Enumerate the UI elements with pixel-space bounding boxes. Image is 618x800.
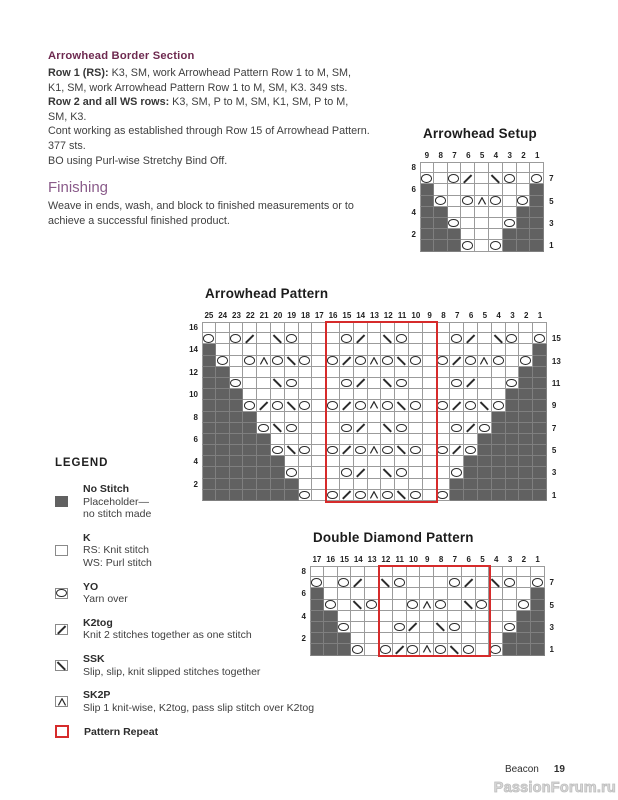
legend-text: YOYarn over bbox=[83, 581, 128, 606]
chart-cell bbox=[517, 218, 531, 229]
chart-cell bbox=[531, 566, 545, 577]
chart-cell bbox=[489, 218, 503, 229]
chart-cell bbox=[434, 229, 448, 240]
row-number-right: 1 bbox=[545, 644, 561, 655]
chart-cell bbox=[437, 479, 451, 490]
chart-cell bbox=[423, 456, 437, 467]
chart-cell bbox=[450, 445, 464, 456]
chart-cell bbox=[475, 173, 489, 184]
chart-cell bbox=[448, 622, 462, 633]
column-number: 24 bbox=[216, 309, 230, 322]
k2tog-icon bbox=[395, 645, 404, 654]
chart-cell bbox=[271, 378, 285, 389]
chart-cell bbox=[420, 600, 434, 611]
legend-item: KRS: Knit stitchWS: Purl stitch bbox=[55, 532, 385, 570]
chart-cell bbox=[475, 162, 489, 173]
footer-brand: Beacon bbox=[505, 764, 539, 775]
row-number-right: 3 bbox=[545, 622, 561, 633]
instruction-paragraph: Cont working as established through Row … bbox=[48, 124, 370, 153]
chart-cell bbox=[492, 389, 506, 400]
chart-cell bbox=[448, 633, 462, 644]
chart-cell bbox=[368, 333, 382, 344]
legend-item-description: RS: Knit stitch bbox=[83, 544, 152, 557]
chart-cell bbox=[450, 412, 464, 423]
chart-cell bbox=[420, 588, 434, 599]
column-number: 10 bbox=[407, 553, 421, 566]
chart-cell bbox=[450, 467, 464, 478]
chart-cell bbox=[230, 434, 244, 445]
row-number-right: 15 bbox=[547, 333, 563, 344]
chart-cell bbox=[448, 644, 462, 655]
row-number-right: 5 bbox=[544, 196, 560, 207]
chart-cell bbox=[489, 577, 503, 588]
chart-cell bbox=[503, 229, 517, 240]
row-number-right: 5 bbox=[547, 445, 563, 456]
chart-cell bbox=[381, 378, 395, 389]
column-number: 15 bbox=[340, 309, 354, 322]
column-number: 21 bbox=[257, 309, 271, 322]
chart-cell bbox=[517, 207, 531, 218]
chart-cell bbox=[381, 333, 395, 344]
chart-cell bbox=[409, 322, 423, 333]
chart-cell bbox=[230, 356, 244, 367]
chart-cell bbox=[312, 344, 326, 355]
instruction-paragraphs: Row 1 (RS): K3, SM, work Arrowhead Patte… bbox=[48, 66, 370, 168]
yarn-over-icon bbox=[327, 401, 338, 410]
chart-cell bbox=[461, 196, 475, 207]
chart-cell bbox=[437, 423, 451, 434]
chart-cell bbox=[230, 378, 244, 389]
chart-cell bbox=[409, 490, 423, 501]
yarn-over-icon bbox=[493, 356, 504, 365]
chart-cell bbox=[462, 633, 476, 644]
chart-cell bbox=[437, 467, 451, 478]
chart-cell bbox=[464, 378, 478, 389]
yarn-over-icon bbox=[504, 623, 515, 632]
chart-cell bbox=[450, 479, 464, 490]
chart-cell bbox=[243, 333, 257, 344]
column-number: 11 bbox=[393, 553, 407, 566]
column-number: 25 bbox=[202, 309, 216, 322]
chart-cell bbox=[326, 434, 340, 445]
chart-cell bbox=[299, 434, 313, 445]
row-number-left bbox=[404, 173, 420, 184]
chart-cell bbox=[340, 344, 354, 355]
row-number-left: 16 bbox=[186, 322, 202, 333]
ssk-icon bbox=[273, 334, 282, 343]
column-number: 6 bbox=[461, 149, 475, 162]
chart-cell bbox=[492, 333, 506, 344]
chart-cell bbox=[448, 196, 462, 207]
row-number-right: 3 bbox=[547, 467, 563, 478]
chart-cell bbox=[519, 378, 533, 389]
chart-cell bbox=[368, 367, 382, 378]
chart-cell bbox=[476, 611, 490, 622]
chart-cell bbox=[354, 400, 368, 411]
chart-cell bbox=[395, 378, 409, 389]
chart-cell bbox=[423, 434, 437, 445]
yarn-over-icon bbox=[490, 241, 501, 250]
ssk-icon bbox=[397, 356, 406, 365]
chart-cell bbox=[519, 356, 533, 367]
row-number-right bbox=[545, 611, 561, 622]
chart-cell bbox=[489, 240, 503, 251]
k2tog-icon bbox=[463, 174, 472, 183]
chart-cell bbox=[381, 423, 395, 434]
chart-cell bbox=[489, 566, 503, 577]
chart-cell bbox=[230, 367, 244, 378]
yarn-over-icon bbox=[435, 196, 446, 205]
legend-item-description: Knit 2 stitches together as one stitch bbox=[83, 629, 252, 642]
yarn-over-icon bbox=[532, 578, 543, 587]
chart-cell bbox=[202, 367, 216, 378]
chart-cell bbox=[448, 600, 462, 611]
chart-cell bbox=[381, 389, 395, 400]
ssk-icon bbox=[273, 379, 282, 388]
chart-cell bbox=[271, 412, 285, 423]
sk2p-icon bbox=[57, 698, 67, 706]
k2tog-icon bbox=[466, 423, 475, 432]
chart-cell bbox=[464, 456, 478, 467]
chart-cell bbox=[462, 611, 476, 622]
yarn-over-icon bbox=[506, 334, 517, 343]
chart-cell bbox=[519, 344, 533, 355]
chart-cell bbox=[368, 445, 382, 456]
chart-cell bbox=[434, 184, 448, 195]
chart-cell bbox=[519, 400, 533, 411]
ssk-icon bbox=[480, 401, 489, 410]
chart-cell bbox=[340, 445, 354, 456]
chart-cell bbox=[478, 423, 492, 434]
yarn-over-icon bbox=[382, 356, 393, 365]
legend-text: K2togKnit 2 stitches together as one sti… bbox=[83, 617, 252, 642]
chart-cell bbox=[506, 389, 520, 400]
column-number: 6 bbox=[462, 553, 476, 566]
column-number: 1 bbox=[533, 309, 547, 322]
chart-cell bbox=[492, 344, 506, 355]
chart-cell bbox=[517, 577, 531, 588]
chart-cell bbox=[533, 423, 547, 434]
chart-cell bbox=[506, 434, 520, 445]
chart-cell bbox=[450, 322, 464, 333]
chart-cell bbox=[312, 333, 326, 344]
k2tog-icon bbox=[342, 446, 351, 455]
chart-cell bbox=[423, 467, 437, 478]
chart-cell bbox=[492, 356, 506, 367]
yarn-over-icon bbox=[244, 356, 255, 365]
chart-cell bbox=[368, 400, 382, 411]
chart-cell bbox=[503, 218, 517, 229]
chart-cell bbox=[519, 456, 533, 467]
chart-cell bbox=[368, 434, 382, 445]
chart-cell bbox=[464, 333, 478, 344]
chart-cell bbox=[506, 367, 520, 378]
column-number: 5 bbox=[478, 309, 492, 322]
yarn-over-icon bbox=[451, 379, 462, 388]
k2tog-icon bbox=[466, 379, 475, 388]
instruction-paragraph: BO using Purl-wise Stretchy Bind Off. bbox=[48, 154, 370, 169]
ssk-icon bbox=[383, 334, 392, 343]
ssk-icon bbox=[450, 645, 459, 654]
sk2p-icon bbox=[479, 357, 489, 365]
chart-cell bbox=[464, 400, 478, 411]
chart-cell bbox=[531, 611, 545, 622]
legend-text: SK2PSlip 1 knit-wise, K2tog, pass slip s… bbox=[83, 689, 314, 714]
chart-cell bbox=[489, 162, 503, 173]
chart-cell bbox=[271, 322, 285, 333]
chart-cell bbox=[395, 423, 409, 434]
ssk-icon bbox=[494, 334, 503, 343]
chart-cell bbox=[409, 412, 423, 423]
chart-cell bbox=[409, 344, 423, 355]
chart-cell bbox=[517, 184, 531, 195]
column-number: 20 bbox=[271, 309, 285, 322]
chart-cell bbox=[407, 577, 421, 588]
yarn-over-icon bbox=[437, 446, 448, 455]
chart-cell bbox=[243, 367, 257, 378]
row-number-right bbox=[545, 566, 561, 577]
chart-cell bbox=[448, 588, 462, 599]
row-number-right bbox=[547, 456, 563, 467]
chart-cell bbox=[503, 633, 517, 644]
column-number: 22 bbox=[243, 309, 257, 322]
chart-cell bbox=[506, 479, 520, 490]
chart-cell bbox=[257, 367, 271, 378]
chart-cell bbox=[354, 367, 368, 378]
chart-cell bbox=[462, 577, 476, 588]
chart-cell bbox=[503, 611, 517, 622]
chart-cell bbox=[271, 400, 285, 411]
ssk-icon bbox=[397, 401, 406, 410]
chart-cell bbox=[533, 356, 547, 367]
chart-cell bbox=[216, 322, 230, 333]
chart-cell bbox=[461, 207, 475, 218]
chart-cell bbox=[434, 218, 448, 229]
chart-cell bbox=[461, 229, 475, 240]
yarn-over-icon bbox=[341, 424, 352, 433]
chart-cell bbox=[519, 367, 533, 378]
chart-cell bbox=[506, 467, 520, 478]
chart-cell bbox=[462, 644, 476, 655]
legend-item-name: SK2P bbox=[83, 689, 314, 702]
row-number-right: 11 bbox=[547, 378, 563, 389]
chart-cell bbox=[530, 196, 544, 207]
chart-cell bbox=[285, 367, 299, 378]
chart-cell bbox=[230, 322, 244, 333]
yarn-over-icon bbox=[382, 446, 393, 455]
chart-cell bbox=[299, 412, 313, 423]
chart-cell bbox=[530, 173, 544, 184]
chart-cell bbox=[243, 356, 257, 367]
sk2p-icon bbox=[422, 645, 432, 653]
chart-cell bbox=[533, 378, 547, 389]
chart-cell bbox=[492, 479, 506, 490]
chart-cell bbox=[519, 467, 533, 478]
column-number: 16 bbox=[326, 309, 340, 322]
chart-cell bbox=[420, 162, 434, 173]
chart-cell bbox=[489, 173, 503, 184]
page-footer: Beacon19 bbox=[0, 764, 565, 775]
chart-cell bbox=[312, 389, 326, 400]
chart-cell bbox=[489, 196, 503, 207]
column-number: 12 bbox=[381, 309, 395, 322]
legend-item-name: YO bbox=[83, 581, 128, 594]
chart-cell bbox=[478, 400, 492, 411]
chart-cell bbox=[489, 229, 503, 240]
chart-cell bbox=[368, 322, 382, 333]
column-number: 7 bbox=[448, 149, 462, 162]
chart-cell bbox=[489, 588, 503, 599]
chart-cell bbox=[381, 322, 395, 333]
k2tog-icon bbox=[409, 623, 418, 632]
row-number-right: 13 bbox=[547, 356, 563, 367]
chart-cell bbox=[462, 600, 476, 611]
chart-cell bbox=[423, 479, 437, 490]
chart-cell bbox=[478, 322, 492, 333]
legend-item-name: K2tog bbox=[83, 617, 252, 630]
chart-cell bbox=[299, 423, 313, 434]
chart-cell bbox=[476, 622, 490, 633]
row-number-right: 5 bbox=[545, 600, 561, 611]
chart-cell bbox=[533, 367, 547, 378]
chart-cell bbox=[519, 490, 533, 501]
chart-cell bbox=[475, 240, 489, 251]
column-number: 2 bbox=[519, 309, 533, 322]
chart-cell bbox=[434, 611, 448, 622]
chart-cell bbox=[393, 633, 407, 644]
chart-cell bbox=[409, 467, 423, 478]
chart-cell bbox=[216, 356, 230, 367]
chart-cell bbox=[423, 423, 437, 434]
chart-cell bbox=[368, 356, 382, 367]
chart-cell bbox=[506, 344, 520, 355]
chart-cell bbox=[506, 356, 520, 367]
chart-cell bbox=[437, 490, 451, 501]
sk2p-icon bbox=[369, 446, 379, 454]
column-number: 4 bbox=[492, 309, 506, 322]
chart-cell bbox=[503, 644, 517, 655]
chart-cell bbox=[299, 322, 313, 333]
column-number: 23 bbox=[230, 309, 244, 322]
chart-cell bbox=[409, 400, 423, 411]
yarn-over-icon bbox=[396, 379, 407, 388]
yarn-over-icon bbox=[448, 174, 459, 183]
row-number-left: 10 bbox=[186, 389, 202, 400]
column-number: 10 bbox=[409, 309, 423, 322]
yarn-over-icon bbox=[410, 491, 421, 500]
chart-title: Arrowhead Pattern bbox=[205, 286, 563, 301]
chart-cell bbox=[519, 434, 533, 445]
chart-cell bbox=[368, 389, 382, 400]
legend-item-description: Yarn over bbox=[83, 593, 128, 606]
k2tog-icon bbox=[55, 624, 68, 635]
chart-cell bbox=[395, 367, 409, 378]
column-number: 9 bbox=[420, 149, 434, 162]
chart-cell bbox=[285, 434, 299, 445]
chart-cell bbox=[423, 322, 437, 333]
chart-cell bbox=[285, 423, 299, 434]
chart-cell bbox=[243, 423, 257, 434]
chart-cell bbox=[299, 367, 313, 378]
chart-cell bbox=[340, 412, 354, 423]
yarn-over-icon bbox=[517, 196, 528, 205]
chart-cell bbox=[437, 356, 451, 367]
chart-cell bbox=[464, 356, 478, 367]
chart-cell bbox=[395, 356, 409, 367]
chart-cell bbox=[506, 490, 520, 501]
chart-cell bbox=[202, 434, 216, 445]
sk2p-icon bbox=[259, 357, 269, 365]
legend-heading: LEGEND bbox=[55, 457, 385, 469]
chart-cell bbox=[202, 378, 216, 389]
chart-cell bbox=[299, 445, 313, 456]
legend-items: No StitchPlaceholder—no stitch madeKRS: … bbox=[55, 483, 385, 738]
yarn-over-icon bbox=[396, 424, 407, 433]
chart-cell bbox=[271, 367, 285, 378]
row-number-right bbox=[544, 207, 560, 218]
chart-cell bbox=[476, 566, 490, 577]
chart-cell bbox=[395, 467, 409, 478]
chart-cell bbox=[312, 322, 326, 333]
column-number: 4 bbox=[489, 553, 503, 566]
yarn-over-icon bbox=[394, 578, 405, 587]
yarn-over-icon bbox=[448, 219, 459, 228]
chart-cell bbox=[464, 445, 478, 456]
chart-cell bbox=[517, 600, 531, 611]
chart-cell bbox=[299, 400, 313, 411]
chart-cell bbox=[326, 423, 340, 434]
chart-cell bbox=[492, 400, 506, 411]
chart-cell bbox=[381, 445, 395, 456]
chart-cell bbox=[450, 434, 464, 445]
chart-cell bbox=[478, 356, 492, 367]
sk2p-icon bbox=[422, 601, 432, 609]
chart-cell bbox=[437, 378, 451, 389]
chart-cell bbox=[476, 600, 490, 611]
chart-cell bbox=[517, 173, 531, 184]
chart-cell bbox=[462, 588, 476, 599]
chart-cell bbox=[312, 423, 326, 434]
row-number-right bbox=[545, 633, 561, 644]
chart-cell bbox=[423, 490, 437, 501]
chart-cell bbox=[530, 229, 544, 240]
chart-cell bbox=[492, 423, 506, 434]
chart-cell bbox=[285, 322, 299, 333]
chart-cell bbox=[409, 479, 423, 490]
chart-cell bbox=[450, 378, 464, 389]
chart-cell bbox=[340, 400, 354, 411]
column-number: 8 bbox=[434, 553, 448, 566]
column-number: 9 bbox=[420, 553, 434, 566]
chart-cell bbox=[393, 588, 407, 599]
chart-cell bbox=[434, 173, 448, 184]
sk2p-icon bbox=[477, 197, 487, 205]
row-number-left: 14 bbox=[186, 344, 202, 355]
yarn-over-icon bbox=[479, 424, 490, 433]
column-number: 3 bbox=[503, 149, 517, 162]
k2tog-icon bbox=[245, 334, 254, 343]
ssk-icon bbox=[397, 490, 406, 499]
yarn-over-icon bbox=[449, 623, 460, 632]
row-number-right bbox=[547, 344, 563, 355]
chart-cell bbox=[434, 622, 448, 633]
chart-cell bbox=[340, 434, 354, 445]
chart-cell bbox=[230, 389, 244, 400]
chart-cell bbox=[340, 378, 354, 389]
chart-cell bbox=[519, 479, 533, 490]
chart-cell bbox=[506, 456, 520, 467]
chart-cell bbox=[299, 333, 313, 344]
